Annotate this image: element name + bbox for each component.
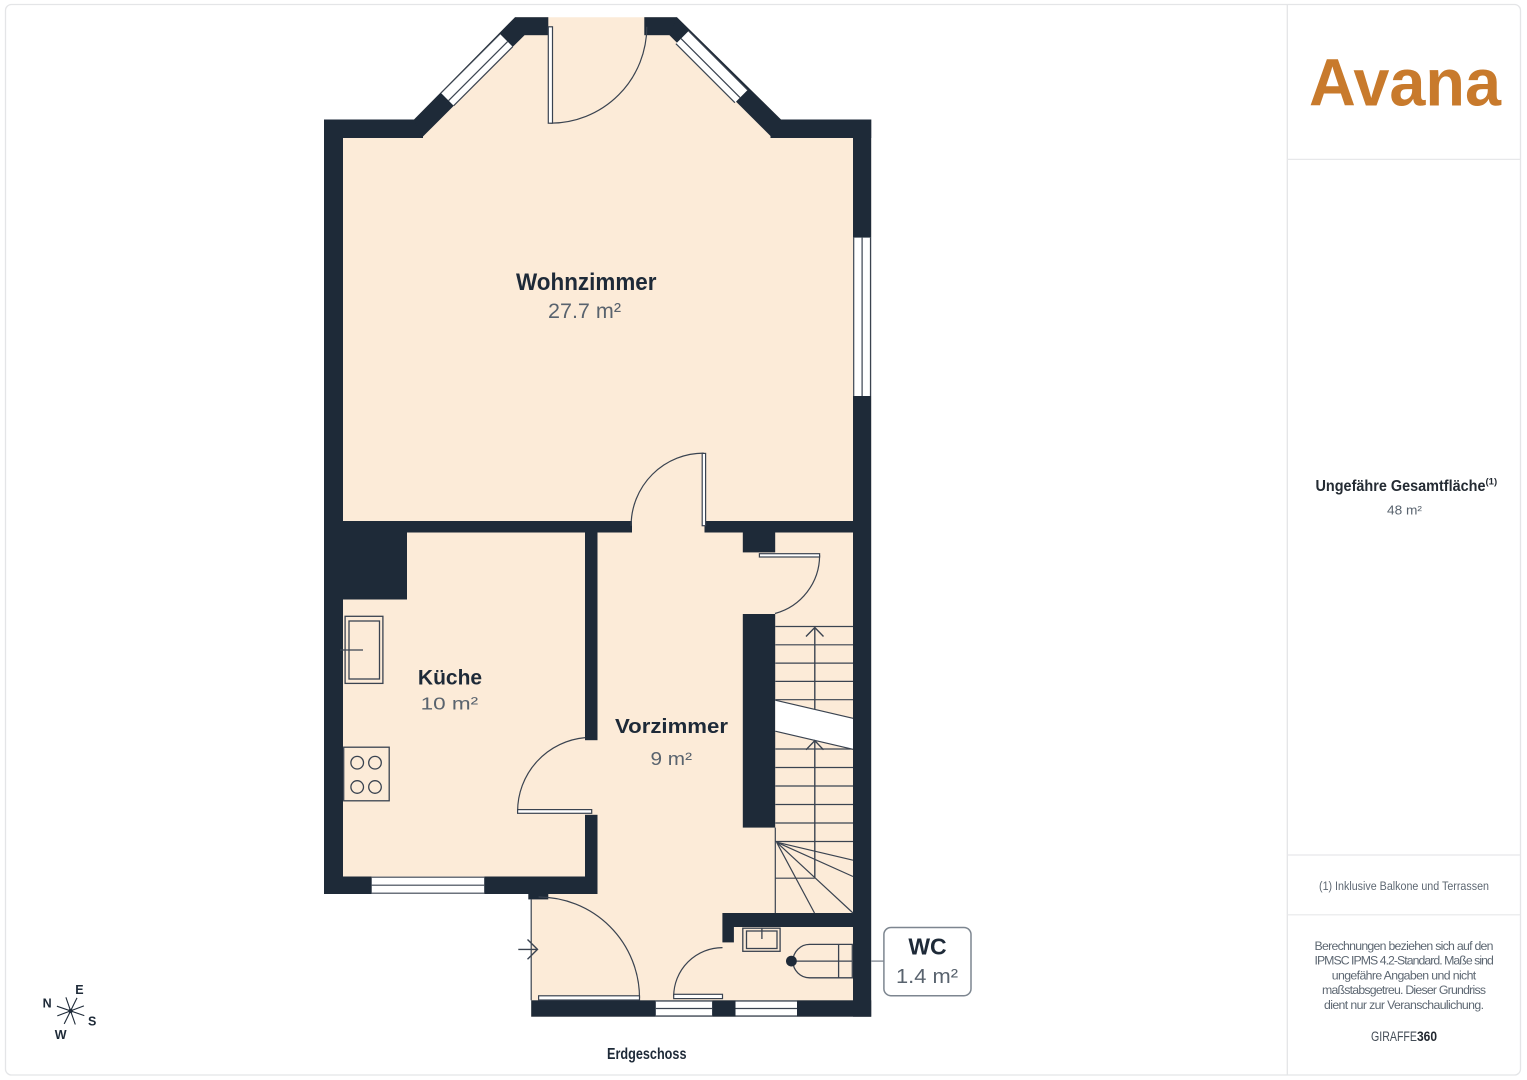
svg-text:Ungefähre Gesamtfläche(1): Ungefähre Gesamtfläche(1) xyxy=(1316,477,1498,496)
svg-text:Küche: Küche xyxy=(418,666,482,689)
svg-text:N: N xyxy=(43,996,52,1010)
svg-text:maßstabsgetreu. Dieser Grundri: maßstabsgetreu. Dieser Grundriss xyxy=(1322,983,1486,997)
svg-text:E: E xyxy=(75,983,83,997)
svg-text:Erdgeschoss: Erdgeschoss xyxy=(607,1046,687,1063)
svg-text:27.7 m²: 27.7 m² xyxy=(548,300,621,323)
svg-text:ungefähre Angaben und nicht: ungefähre Angaben und nicht xyxy=(1332,968,1477,982)
svg-text:S: S xyxy=(88,1015,96,1029)
svg-text:1.4 m²: 1.4 m² xyxy=(896,965,958,988)
svg-text:dient nur zur Veranschaulichun: dient nur zur Veranschaulichung. xyxy=(1324,998,1484,1012)
svg-text:WC: WC xyxy=(908,934,946,960)
svg-text:9 m²: 9 m² xyxy=(651,749,693,769)
svg-text:Wohnzimmer: Wohnzimmer xyxy=(516,269,657,296)
svg-text:W: W xyxy=(55,1028,67,1042)
svg-text:Vorzimmer: Vorzimmer xyxy=(615,716,728,738)
svg-text:GIRAFFE360: GIRAFFE360 xyxy=(1371,1029,1437,1044)
svg-text:(1) Inklusive Balkone und Terr: (1) Inklusive Balkone und Terrassen xyxy=(1319,879,1489,893)
svg-text:IPMSC IPMS 4.2-Standard. Maße: IPMSC IPMS 4.2-Standard. Maße sind xyxy=(1315,954,1494,968)
svg-text:Avana: Avana xyxy=(1309,46,1502,121)
svg-text:10 m²: 10 m² xyxy=(421,694,479,714)
svg-text:Berechnungen beziehen sich auf: Berechnungen beziehen sich auf den xyxy=(1315,939,1494,953)
svg-text:48 m²: 48 m² xyxy=(1387,503,1423,518)
